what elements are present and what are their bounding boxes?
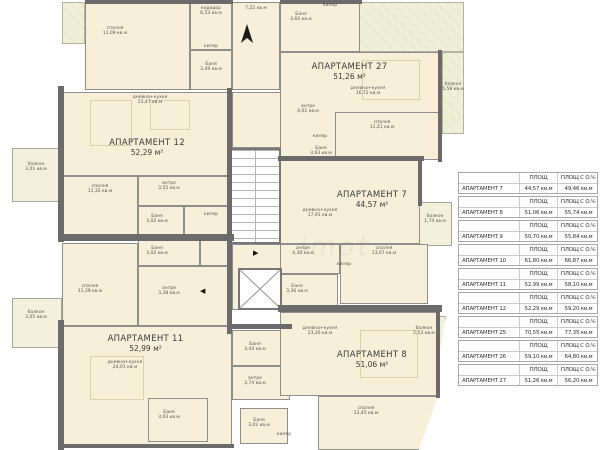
wall — [85, 0, 233, 4]
north-arrow-icon — [240, 24, 254, 48]
table-row: ПЛОЩПЛОЩ С О.Ч. АПАРТАМЕНТ 2659,10 кв.м6… — [458, 340, 598, 362]
area-cell: 50,70 кв.м — [519, 231, 557, 241]
room-name: килер — [316, 3, 344, 8]
room-label: коридор6,53 кв.м — [192, 6, 230, 17]
table-row: ПЛОЩПЛОЩ С О.Ч. АПАРТАМЕНТ 1061,80 кв.м6… — [458, 244, 598, 266]
room-area: 4,01 кв.м — [292, 109, 324, 114]
area-common-cell: 58,10 кв.м — [557, 279, 599, 289]
apartment-cell: АПАРТАМЕНТ 8 — [459, 207, 519, 217]
col-header-area-common: ПЛОЩ С О.Ч. — [557, 269, 599, 279]
room-label: Баня3,44 кв.м — [238, 342, 272, 353]
col-header-area-common: ПЛОЩ С О.Ч. — [557, 341, 599, 351]
room-area: 23,47 кв.м — [120, 100, 180, 105]
room-area: 3,63 кв.м — [306, 151, 336, 156]
room-label: антре3,55 кв.м — [152, 181, 186, 192]
apartment-cell: АПАРТАМЕНТ 9 — [459, 231, 519, 241]
table-row: ПЛОЩПЛОЩ С О.Ч. АПАРТАМЕНТ 2570,55 кв.м7… — [458, 316, 598, 338]
room-name: килер — [194, 44, 228, 49]
apartment-label: АПАРТАМЕНТ 7 44,57 м² — [322, 190, 422, 209]
apartment-area: 51,06 м² — [322, 360, 422, 369]
room-label: 7,22 кв.м — [236, 6, 276, 11]
apartment-cell: АПАРТАМЕНТ 25 — [459, 327, 519, 337]
area-common-cell: 55,74 кв.м — [557, 207, 599, 217]
terrace — [358, 2, 464, 52]
room-area: 2,53 кв.м — [406, 331, 442, 336]
table-cell-blank — [459, 293, 519, 303]
table-cell-blank — [459, 197, 519, 207]
room-label: килер — [306, 134, 334, 139]
col-header-area: ПЛОЩ — [519, 317, 557, 327]
room — [85, 2, 190, 90]
section-arrow-icon: ◀ — [200, 288, 205, 295]
col-header-area: ПЛОЩ — [519, 269, 557, 279]
table-cell-blank — [459, 245, 519, 255]
wall — [62, 444, 234, 448]
area-cell: 52,99 кв.м — [519, 279, 557, 289]
room-area: 13,45 кв.м — [344, 411, 388, 416]
room-area: 4,30 кв.м — [286, 251, 320, 256]
area-common-cell: 64,80 кв.м — [557, 351, 599, 361]
room-label: антре4,30 кв.м — [286, 246, 320, 257]
wall — [438, 50, 442, 162]
room — [280, 2, 360, 52]
room-label: Баня3,02 кв.м — [244, 418, 274, 429]
room-area: 11,09 кв.м — [95, 31, 135, 36]
table-cell-blank — [459, 269, 519, 279]
room-label: дневна+кухня24,01 кв.м — [95, 360, 155, 371]
col-header-area: ПЛОЩ — [519, 245, 557, 255]
apartment-cell: АПАРТАМЕНТ 12 — [459, 303, 519, 313]
col-header-area-common: ПЛОЩ С О.Ч. — [557, 197, 599, 207]
room-area: 3,38 кв.м — [152, 291, 186, 296]
room-label: дневна+кухня23,47 кв.м — [120, 95, 180, 106]
apartment-name: АПАРТАМЕНТ 7 — [322, 190, 422, 200]
section-arrow-icon: ▶ — [253, 250, 258, 257]
room-label: килер — [330, 262, 358, 267]
room-name: килер — [270, 432, 298, 437]
terrace — [442, 52, 464, 134]
room-area: 6,53 кв.м — [192, 11, 230, 16]
apartment-name: АПАРТАМЕНТ 12 — [92, 138, 202, 148]
room-area: 3,02 кв.м — [142, 251, 172, 256]
room-area: 3,02 кв.м — [244, 423, 274, 428]
room-area: 3,36 кв.м — [282, 289, 312, 294]
room-area: 13,07 кв.м — [362, 251, 406, 256]
room-area: 5,58 кв.м — [440, 87, 466, 92]
elevator-cross-icon — [240, 270, 280, 308]
room-area: 3,02 кв.м — [142, 219, 172, 224]
table-cell-blank — [459, 173, 519, 183]
room-area: 3,60 кв.м — [286, 17, 316, 22]
apartment-cell: АПАРТАМЕНТ 27 — [459, 375, 519, 385]
col-header-area: ПЛОЩ — [519, 341, 557, 351]
terrace — [62, 2, 85, 44]
col-header-area: ПЛОЩ — [519, 221, 557, 231]
area-common-cell: 49,46 кв.м — [557, 183, 599, 193]
room-label: балкон3,01 кв.м — [16, 162, 56, 173]
apartment-name: АПАРТАМЕНТ 8 — [322, 350, 422, 360]
room-area: 17,91 кв.м — [292, 213, 348, 218]
room-label: антре3,74 кв.м — [238, 376, 272, 387]
area-common-cell: 59,20 кв.м — [557, 303, 599, 313]
table-row: ПЛОЩПЛОЩ С О.Ч. АПАРТАМЕНТ 851,06 кв.м55… — [458, 196, 598, 218]
table-cell-blank — [459, 365, 519, 375]
wall — [278, 156, 424, 161]
room-name: килер — [196, 212, 226, 217]
room-area: 3,03 кв.м — [152, 415, 186, 420]
room-area: 1,74 кв.м — [419, 219, 451, 224]
wall — [58, 86, 64, 242]
area-cell: 51,26 кв.м — [519, 375, 557, 385]
apartment-area: 52,29 м² — [92, 148, 202, 157]
room-label: балкон1,74 кв.м — [419, 214, 451, 225]
room-area: 3,74 кв.м — [238, 381, 272, 386]
apartment-cell: АПАРТАМЕНТ 10 — [459, 255, 519, 265]
table-cell-blank — [459, 317, 519, 327]
room-label: балкон3,05 кв.м — [16, 310, 56, 321]
wall — [278, 305, 442, 312]
col-header-area-common: ПЛОЩ С О.Ч. — [557, 221, 599, 231]
room-area: 3,44 кв.м — [238, 347, 272, 352]
area-cell: 51,06 кв.м — [519, 207, 557, 217]
room-label: Баня3,63 кв.м — [306, 146, 336, 157]
wall — [62, 234, 234, 241]
room-label: килер — [270, 432, 298, 437]
col-header-area-common: ПЛОЩ С О.Ч. — [557, 317, 599, 327]
wall — [232, 324, 292, 329]
room-area: 23,26 кв.м — [292, 331, 348, 336]
apartment-area: 52,99 м² — [88, 344, 203, 353]
table-cell-blank — [459, 341, 519, 351]
table-cell-blank — [459, 221, 519, 231]
wall — [58, 320, 64, 450]
room-label: килер — [196, 212, 226, 217]
table-row: ПЛОЩПЛОЩ С О.Ч. АПАРТАМЕНТ 950,70 кв.м55… — [458, 220, 598, 242]
room-area: 7,22 кв.м — [236, 6, 276, 11]
room-area: 3,05 кв.м — [16, 315, 56, 320]
room-label: дневна+кухня16,72 кв.м — [340, 86, 396, 97]
room-area: 3,55 кв.м — [152, 186, 186, 191]
room-label: антре3,38 кв.м — [152, 286, 186, 297]
room-label: Баня3,02 кв.м — [142, 246, 172, 257]
room-area: 11,39 кв.м — [70, 289, 110, 294]
room-label: спалня13,45 кв.м — [344, 406, 388, 417]
area-cell: 61,80 кв.м — [519, 255, 557, 265]
room-label: килер — [316, 3, 344, 8]
apartment-label: АПАРТАМЕНТ 27 51,26 м² — [292, 62, 407, 81]
apartment-cell: АПАРТАМЕНТ 26 — [459, 351, 519, 361]
area-cell: 59,10 кв.м — [519, 351, 557, 361]
col-header-area-common: ПЛОЩ С О.Ч. — [557, 173, 599, 183]
area-cell: 44,57 кв.м — [519, 183, 557, 193]
col-header-area-common: ПЛОЩ С О.Ч. — [557, 365, 599, 375]
col-header-area: ПЛОЩ — [519, 293, 557, 303]
table-row: ПЛОЩПЛОЩ С О.Ч. АПАРТАМЕНТ 2751,26 кв.м5… — [458, 364, 598, 386]
room-label: килер — [194, 44, 228, 49]
balcony — [12, 298, 62, 348]
apartment-cell: АПАРТАМЕНТ 7 — [459, 183, 519, 193]
room-area: 11,35 кв.м — [80, 189, 120, 194]
area-cell: 70,55 кв.м — [519, 327, 557, 337]
apartment-name: АПАРТАМЕНТ 27 — [292, 62, 407, 72]
room-label: Баня3,49 кв.м — [196, 62, 226, 73]
wall — [436, 310, 440, 398]
table-row: ПЛОЩПЛОЩ С О.Ч. АПАРТАМЕНТ 1252,29 кв.м5… — [458, 292, 598, 314]
col-header-area-common: ПЛОЩ С О.Ч. — [557, 245, 599, 255]
room-label: спалня11,21 кв.м — [360, 120, 404, 131]
apartment-name: АПАРТАМЕНТ 11 — [88, 334, 203, 344]
table-row: ПЛОЩПЛОЩ С О.Ч. АПАРТАМЕНТ 744,57 кв.м49… — [458, 172, 598, 194]
area-common-cell: 77,35 кв.м — [557, 327, 599, 337]
col-header-area: ПЛОЩ — [519, 173, 557, 183]
room-label: дневна+кухня17,91 кв.м — [292, 208, 348, 219]
room-name: килер — [306, 134, 334, 139]
stairwell — [229, 148, 281, 244]
room-label: Баня3,60 кв.м — [286, 12, 316, 23]
room-label: балкон2,53 кв.м — [406, 326, 442, 337]
elevator — [238, 268, 282, 310]
room-label: спалня11,09 кв.м — [95, 26, 135, 37]
room-label: Баня3,03 кв.м — [152, 410, 186, 421]
room-label: спалня13,07 кв.м — [362, 246, 406, 257]
col-header-area: ПЛОЩ — [519, 365, 557, 375]
room-label: Баня3,36 кв.м — [282, 284, 312, 295]
apartment-area: 51,26 м² — [292, 72, 407, 81]
room-area: 16,72 кв.м — [340, 91, 396, 96]
room-label: дневна+кухня23,26 кв.м — [292, 326, 348, 337]
room-area: 3,01 кв.м — [16, 167, 56, 172]
room — [318, 396, 438, 450]
area-cell: 52,29 кв.м — [519, 303, 557, 313]
apartment-label: АПАРТАМЕНТ 8 51,06 м² — [322, 350, 422, 369]
apartment-label: АПАРТАМЕНТ 11 52,99 м² — [88, 334, 203, 353]
room-area: 3,49 кв.м — [196, 67, 226, 72]
area-common-cell: 55,84 кв.м — [557, 231, 599, 241]
room-name: килер — [330, 262, 358, 267]
room-label: Баня3,02 кв.м — [142, 214, 172, 225]
room-area: 24,01 кв.м — [95, 365, 155, 370]
floor-plan-canvas: ▶ ◀ imot АПАРТАМЕНТ 12 52,29 м² АПАРТАМЕ… — [0, 0, 600, 450]
room-area: 11,21 кв.м — [360, 125, 404, 130]
col-header-area-common: ПЛОЩ С О.Ч. — [557, 293, 599, 303]
table-row: ПЛОЩПЛОЩ С О.Ч. АПАРТАМЕНТ 1152,99 кв.м5… — [458, 268, 598, 290]
area-table: ПЛОЩПЛОЩ С О.Ч. АПАРТАМЕНТ 744,57 кв.м49… — [458, 172, 598, 388]
apartment-label: АПАРТАМЕНТ 12 52,29 м² — [92, 138, 202, 157]
balcony — [12, 148, 62, 202]
room-label: спалня11,35 кв.м — [80, 184, 120, 195]
apartment-cell: АПАРТАМЕНТ 11 — [459, 279, 519, 289]
area-common-cell: 66,87 кв.м — [557, 255, 599, 265]
col-header-area: ПЛОЩ — [519, 197, 557, 207]
room-label: антре4,01 кв.м — [292, 104, 324, 115]
wall — [227, 88, 232, 334]
room-label: спалня11,39 кв.м — [70, 284, 110, 295]
room-label: балкон5,58 кв.м — [440, 82, 466, 93]
area-common-cell: 56,20 кв.м — [557, 375, 599, 385]
